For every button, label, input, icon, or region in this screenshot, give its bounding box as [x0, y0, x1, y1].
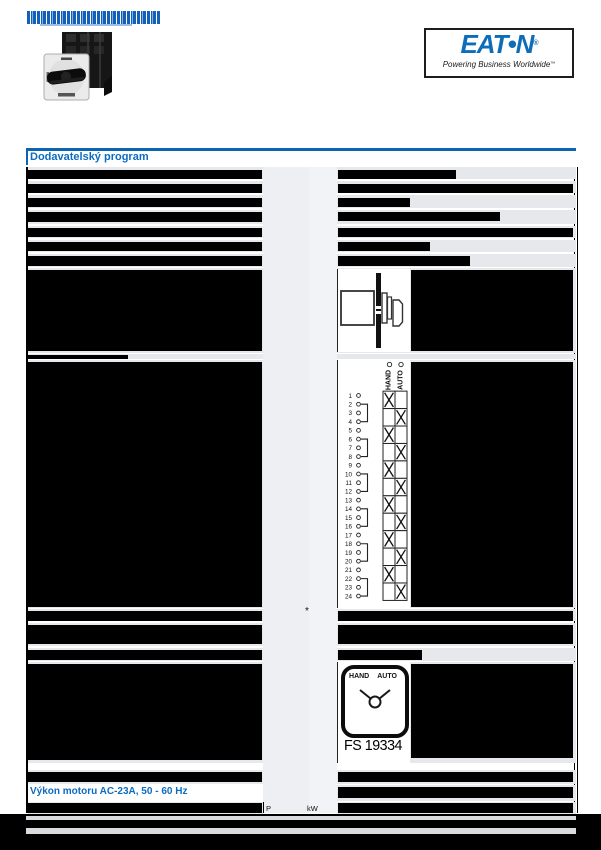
svg-text:22: 22	[345, 576, 353, 583]
footer-stripe	[26, 828, 576, 835]
front-plate-labels: HAND AUTO	[340, 673, 406, 680]
trademark-mark: ™	[550, 61, 555, 67]
redacted-label	[28, 198, 262, 208]
svg-text:11: 11	[345, 480, 352, 487]
svg-text:1: 1	[348, 393, 352, 400]
redacted-value	[338, 772, 573, 782]
redacted-label	[28, 611, 262, 621]
svg-text:12: 12	[345, 489, 353, 496]
svg-text:18: 18	[345, 541, 353, 548]
svg-text:24: 24	[345, 593, 353, 600]
hand-label: HAND	[349, 673, 369, 680]
redacted-label	[28, 772, 262, 782]
eaton-logo: EAT•N® Powering Business Worldwide™	[424, 28, 574, 78]
section-title: Dodavatelský program	[30, 151, 149, 163]
contact-sequence-svg: HANDAUTO12345678910111213141516171819202…	[338, 360, 410, 608]
redacted-fragment	[28, 355, 128, 359]
redacted-label	[28, 650, 262, 660]
svg-text:21: 21	[345, 567, 353, 574]
mounting-diagram-box	[337, 269, 410, 352]
redacted-value	[338, 228, 573, 237]
svg-text:2: 2	[348, 402, 352, 409]
redacted-value	[338, 803, 573, 813]
svg-text:6: 6	[348, 436, 352, 443]
redacted-value	[338, 170, 456, 179]
redacted-label	[28, 184, 262, 193]
svg-text:5: 5	[348, 428, 352, 435]
svg-text:13: 13	[345, 497, 353, 504]
redacted-block	[411, 270, 573, 351]
redacted-block	[28, 270, 262, 351]
redacted-value	[338, 650, 422, 660]
svg-text:10: 10	[345, 471, 353, 478]
redacted-value	[338, 242, 430, 252]
svg-text:3: 3	[348, 410, 352, 417]
svg-text:AUTO: AUTO	[398, 370, 405, 390]
unit-column-band-2	[309, 167, 337, 813]
product-title-redacted	[27, 11, 161, 24]
footer-stripe	[26, 816, 576, 821]
svg-text:HAND: HAND	[386, 370, 393, 390]
redacted-label	[28, 625, 262, 644]
svg-text:15: 15	[345, 515, 353, 522]
redacted-value	[338, 212, 500, 221]
svg-text:17: 17	[345, 532, 353, 539]
unit-column-band	[263, 167, 309, 813]
redacted-block	[28, 362, 262, 607]
svg-text:23: 23	[345, 585, 353, 592]
registered-mark: ®	[533, 40, 537, 47]
footnote-marker: *	[305, 606, 309, 617]
quantity-symbol: P	[266, 804, 271, 813]
svg-text:19: 19	[345, 550, 353, 557]
redacted-block	[411, 664, 573, 758]
datasheet-page: EAT•N® Powering Business Worldwide™ Doda…	[0, 0, 601, 850]
auto-label: AUTO	[377, 673, 397, 680]
svg-text:9: 9	[348, 463, 352, 470]
contact-sequence-diagram: HANDAUTO12345678910111213141516171819202…	[337, 360, 410, 608]
redacted-label	[28, 803, 262, 813]
svg-text:14: 14	[345, 506, 353, 513]
section-left-tick	[26, 148, 28, 165]
eaton-tagline: Powering Business Worldwide™	[426, 60, 572, 69]
redacted-block	[28, 664, 262, 760]
svg-text:8: 8	[348, 454, 352, 461]
svg-text:7: 7	[348, 445, 352, 452]
svg-text:20: 20	[345, 558, 353, 565]
subsection-title: Výkon motoru AC-23A, 50 - 60 Hz	[30, 786, 187, 797]
front-plate-code: FS 19334	[339, 737, 407, 754]
redacted-label	[28, 228, 262, 237]
eaton-wordmark: EAT•N®	[426, 31, 572, 57]
redacted-label	[28, 170, 262, 179]
redacted-block	[411, 362, 573, 607]
column-divider-tick	[263, 802, 264, 813]
redacted-value	[338, 256, 470, 266]
redacted-value	[338, 198, 410, 208]
redacted-value	[338, 625, 573, 644]
redacted-label	[28, 256, 262, 266]
redacted-label	[28, 242, 262, 252]
unit-label: kW	[307, 804, 318, 813]
product-photo	[40, 26, 120, 108]
svg-text:4: 4	[348, 419, 352, 426]
redacted-value	[338, 184, 573, 193]
flush-mounting-diagram	[338, 269, 410, 352]
redacted-label	[28, 212, 262, 222]
table-right-border-2	[577, 167, 579, 813]
svg-text:16: 16	[345, 524, 353, 531]
redacted-value	[338, 611, 573, 621]
redacted-value	[338, 787, 573, 798]
spec-row	[337, 354, 576, 359]
